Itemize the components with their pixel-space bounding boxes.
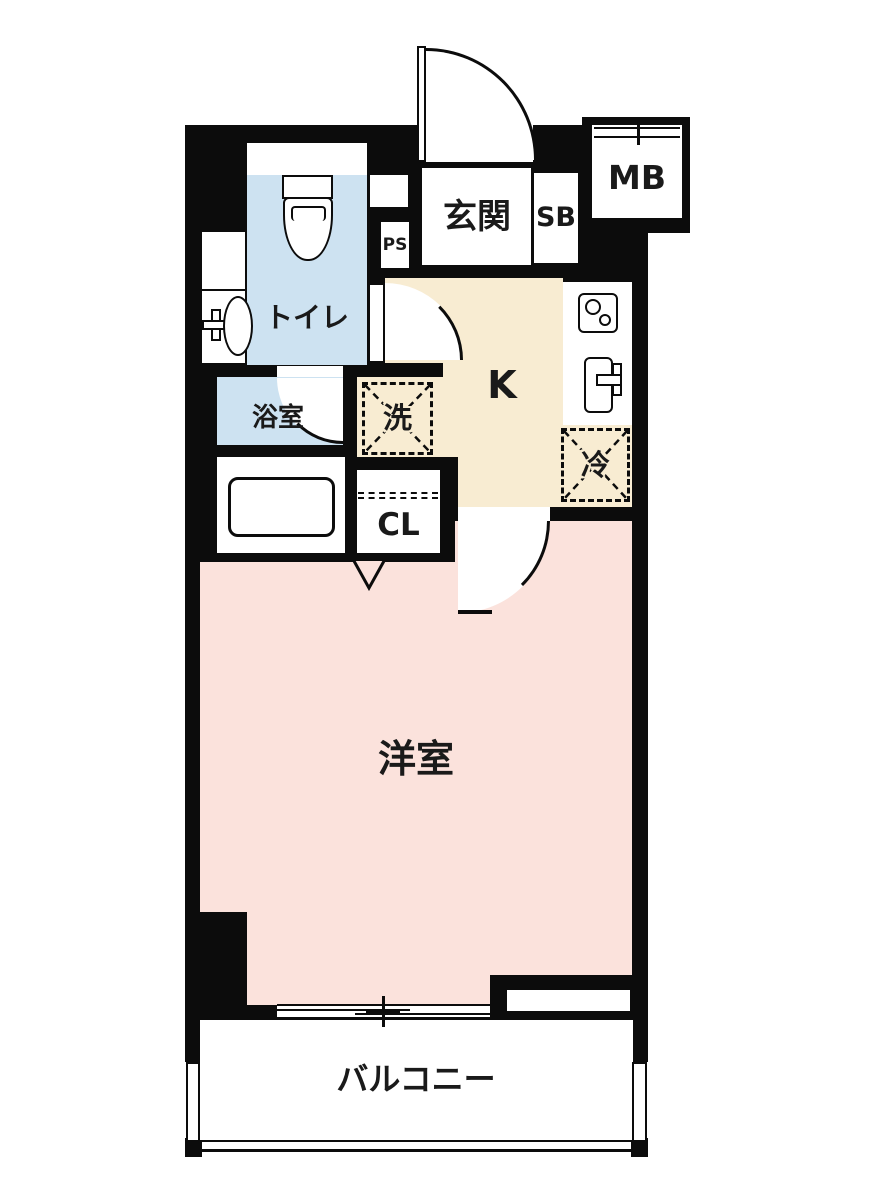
shoe-box-label: SB — [534, 200, 578, 234]
closet-door-lines — [358, 492, 438, 499]
balcony-rail-left — [186, 1062, 200, 1142]
bathtub-icon — [228, 477, 335, 537]
balcony-label: バルコニー — [286, 1060, 546, 1098]
room-doorway — [458, 507, 550, 521]
closet-door-v-icon — [350, 559, 388, 591]
balcony-wall-left — [185, 1020, 200, 1062]
toilet-top-strip — [247, 143, 367, 175]
refrigerator-box: 冷 — [561, 428, 630, 502]
kitchen-floor-lower — [458, 457, 563, 507]
kitchen-label: K — [472, 363, 532, 407]
laundry-label: 洗 — [365, 385, 430, 452]
bathroom-label: 浴室 — [238, 404, 318, 432]
balcony-corner-right — [631, 1140, 648, 1157]
entrance-door-swing-arc — [426, 48, 537, 160]
room-door-leaf — [458, 610, 492, 614]
western-room-floor-lower — [247, 912, 632, 975]
hand-sink-icon — [223, 296, 253, 356]
entrance-label: 玄関 — [424, 198, 530, 236]
pipe-space-niche — [370, 175, 408, 207]
western-room-floor-bottom — [247, 975, 490, 1005]
toilet-label: トイレ — [257, 301, 357, 335]
meter-box-window-tick — [637, 117, 640, 145]
stove-icon — [578, 293, 618, 333]
kitchen-door-leaf — [368, 283, 385, 363]
toilet-tank-icon — [282, 175, 333, 199]
western-room-label: 洋室 — [336, 737, 496, 781]
balcony-rail-right — [632, 1062, 647, 1142]
stove-burner-large — [585, 299, 601, 315]
balcony-rail-line-2 — [185, 1149, 648, 1152]
laundry-box: 洗 — [362, 382, 433, 455]
room-closet: CL — [357, 470, 440, 553]
toilet-side-column-divider — [202, 289, 245, 291]
kitchen-faucet-icon — [596, 374, 622, 386]
refrigerator-label: 冷 — [564, 431, 627, 499]
pipe-space-label: PS — [381, 234, 409, 256]
sliding-window-lock — [366, 1009, 400, 1014]
floor-plan: 冷 洗 CL 玄関 SB MB PS トイレ 浴室 K 洋室 バ — [0, 0, 880, 1200]
closet-label: CL — [357, 500, 440, 550]
entrance-door-leaf — [417, 46, 426, 162]
balcony-corner-left — [185, 1140, 202, 1157]
low-window-slot — [505, 988, 632, 1013]
meter-box-label: MB — [592, 158, 682, 196]
toilet-lid-icon — [291, 206, 326, 221]
stove-burner-small — [599, 314, 611, 326]
balcony-wall-right — [632, 1020, 648, 1062]
